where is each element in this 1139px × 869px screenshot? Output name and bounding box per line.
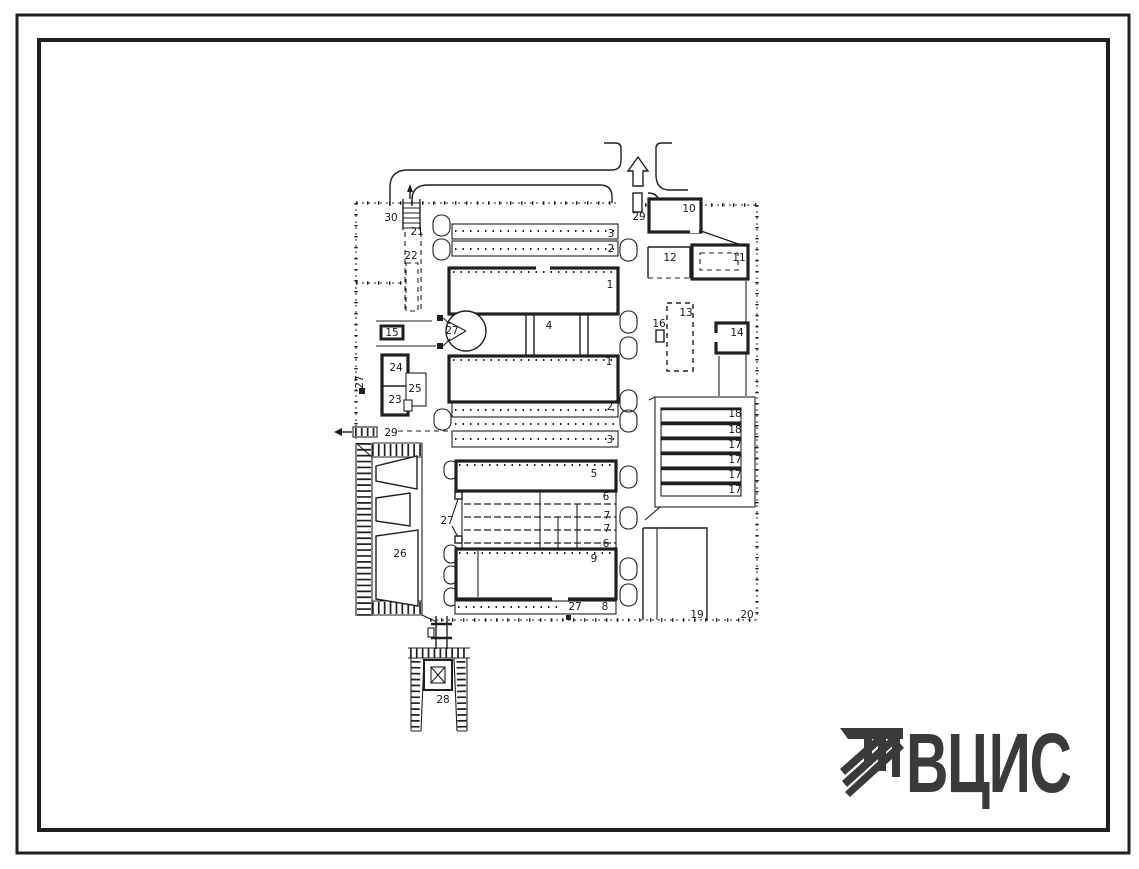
gate-29-north: [633, 193, 642, 212]
site-plan-drawing: 3021222910121132142712316131415242523272…: [0, 0, 1139, 869]
plan-label-21: 21: [410, 226, 423, 238]
vcis-emblem: [840, 728, 904, 797]
plan-label-5: 5: [591, 468, 598, 480]
plan-label-27: 27: [354, 375, 366, 388]
plan-label-26: 26: [393, 548, 407, 560]
plan-label-27: 27: [440, 515, 453, 527]
area-19-20: [643, 528, 707, 620]
marker-square: [437, 315, 443, 321]
plan-label-29: 29: [384, 427, 397, 439]
plan-label-17: 17: [728, 469, 741, 481]
tower-leg-right: [454, 658, 467, 731]
plan-label-10: 10: [682, 203, 695, 215]
plan-label-17: 17: [728, 454, 741, 466]
plan-label-23: 23: [388, 394, 401, 406]
plan-label-2: 2: [608, 243, 615, 255]
plan-label-28: 28: [436, 694, 449, 706]
center-buildings: [433, 215, 637, 620]
building-3-bottom: [452, 431, 618, 447]
plan-label-6: 6: [603, 538, 610, 550]
plan-label-12: 12: [663, 252, 676, 264]
wall-gap: [690, 224, 699, 233]
stack-bays: [661, 408, 741, 496]
plan-label-18: 18: [728, 408, 741, 420]
wall-gap: [714, 333, 719, 342]
structure-16: [656, 330, 664, 342]
silage-pit: [376, 456, 417, 489]
annex: [404, 400, 412, 411]
connector-4: [526, 314, 588, 356]
building-1-top: [449, 268, 618, 314]
structure-22: [406, 263, 418, 311]
tower-leg-left: [411, 658, 424, 731]
plan-label-22: 22: [404, 250, 417, 262]
exit-arrow-icon: [628, 157, 648, 186]
plan-label-18: 18: [728, 424, 741, 436]
marker-square: [428, 628, 434, 637]
plan-label-20: 20: [740, 609, 753, 621]
logo-text: ВЦИС: [906, 717, 1071, 811]
plan-label-11: 11: [732, 252, 745, 264]
plan-label-1: 1: [607, 279, 614, 291]
plan-label-7: 7: [604, 523, 611, 535]
plan-label-6: 6: [603, 491, 610, 503]
gate-arrow-icon: [407, 184, 413, 192]
plan-label-1: 1: [606, 356, 613, 368]
silage-area-26: [356, 443, 437, 622]
silage-pit: [376, 530, 418, 606]
tower-28: [408, 616, 470, 731]
gate-29-west: [353, 427, 377, 437]
vcis-logo: ВЦИС: [840, 717, 1071, 811]
plan-label-24: 24: [389, 362, 403, 374]
marker-square: [437, 343, 443, 349]
drawing-sheet: 3021222910121132142712316131415242523272…: [0, 0, 1139, 869]
plan-label-13: 13: [679, 307, 692, 319]
plan-label-3: 3: [607, 434, 614, 446]
plan-label-25: 25: [408, 383, 421, 395]
road-top-outer: [390, 143, 621, 206]
building-2-top: [452, 241, 618, 256]
road-left-corridor: [405, 232, 421, 312]
marker-square: [566, 615, 571, 620]
plan-label-16: 16: [652, 318, 666, 330]
plan-label-4: 4: [546, 320, 553, 332]
building-2-bottom: [452, 403, 618, 417]
plan-label-30: 30: [384, 212, 397, 224]
plan-label-14: 14: [730, 327, 744, 339]
silage-pit: [376, 493, 410, 526]
plan-label-8: 8: [602, 601, 609, 613]
plan-label-2: 2: [607, 401, 614, 413]
marker-square: [455, 536, 462, 543]
building-3-top: [452, 224, 618, 239]
marker-square: [455, 492, 462, 499]
wall-gap: [536, 265, 550, 270]
plan-label-15: 15: [385, 327, 398, 339]
plan-label-27: 27: [568, 601, 581, 613]
wall-gap: [552, 596, 568, 601]
plan-label-9: 9: [591, 553, 598, 565]
plan-label-29: 29: [632, 211, 645, 223]
plan-label-17: 17: [728, 439, 741, 451]
plan-label-7: 7: [604, 510, 611, 522]
building-8-strip: [455, 601, 616, 614]
pens-grid: [452, 491, 616, 549]
plan-label-19: 19: [690, 609, 703, 621]
plan-label-27: 27: [445, 325, 458, 337]
west-arrow-icon: [334, 428, 342, 436]
building-1-bottom: [449, 356, 618, 402]
plan-label-17: 17: [728, 484, 741, 496]
plan-label-3: 3: [608, 228, 615, 240]
road-exit-right: [656, 143, 688, 190]
